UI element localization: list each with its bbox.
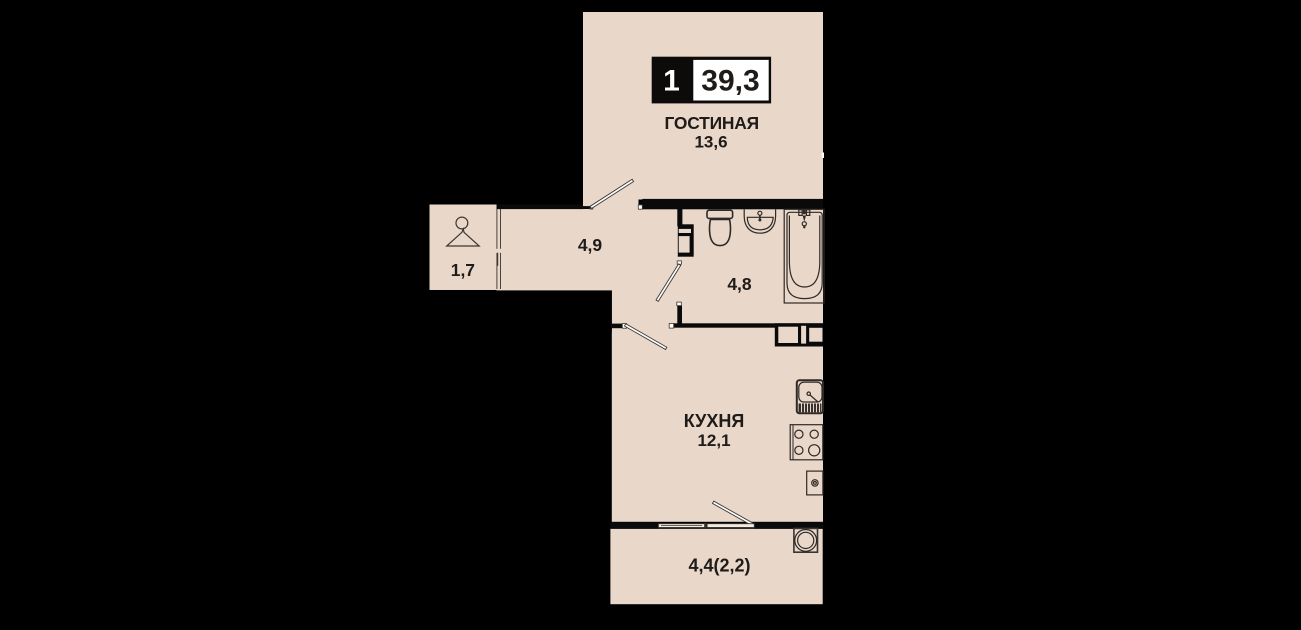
svg-text:4,4(2,2): 4,4(2,2) bbox=[688, 556, 750, 576]
svg-text:12,1: 12,1 bbox=[697, 431, 730, 450]
svg-text:4,8: 4,8 bbox=[727, 274, 752, 294]
svg-text:1: 1 bbox=[663, 65, 680, 98]
svg-text:4,9: 4,9 bbox=[578, 235, 603, 255]
svg-text:ГОСТИНАЯ: ГОСТИНАЯ bbox=[664, 113, 758, 133]
svg-text:39,3: 39,3 bbox=[701, 65, 759, 98]
svg-text:13,6: 13,6 bbox=[694, 132, 727, 151]
svg-text:КУХНЯ: КУХНЯ bbox=[684, 411, 745, 431]
svg-text:1,7: 1,7 bbox=[451, 260, 475, 280]
